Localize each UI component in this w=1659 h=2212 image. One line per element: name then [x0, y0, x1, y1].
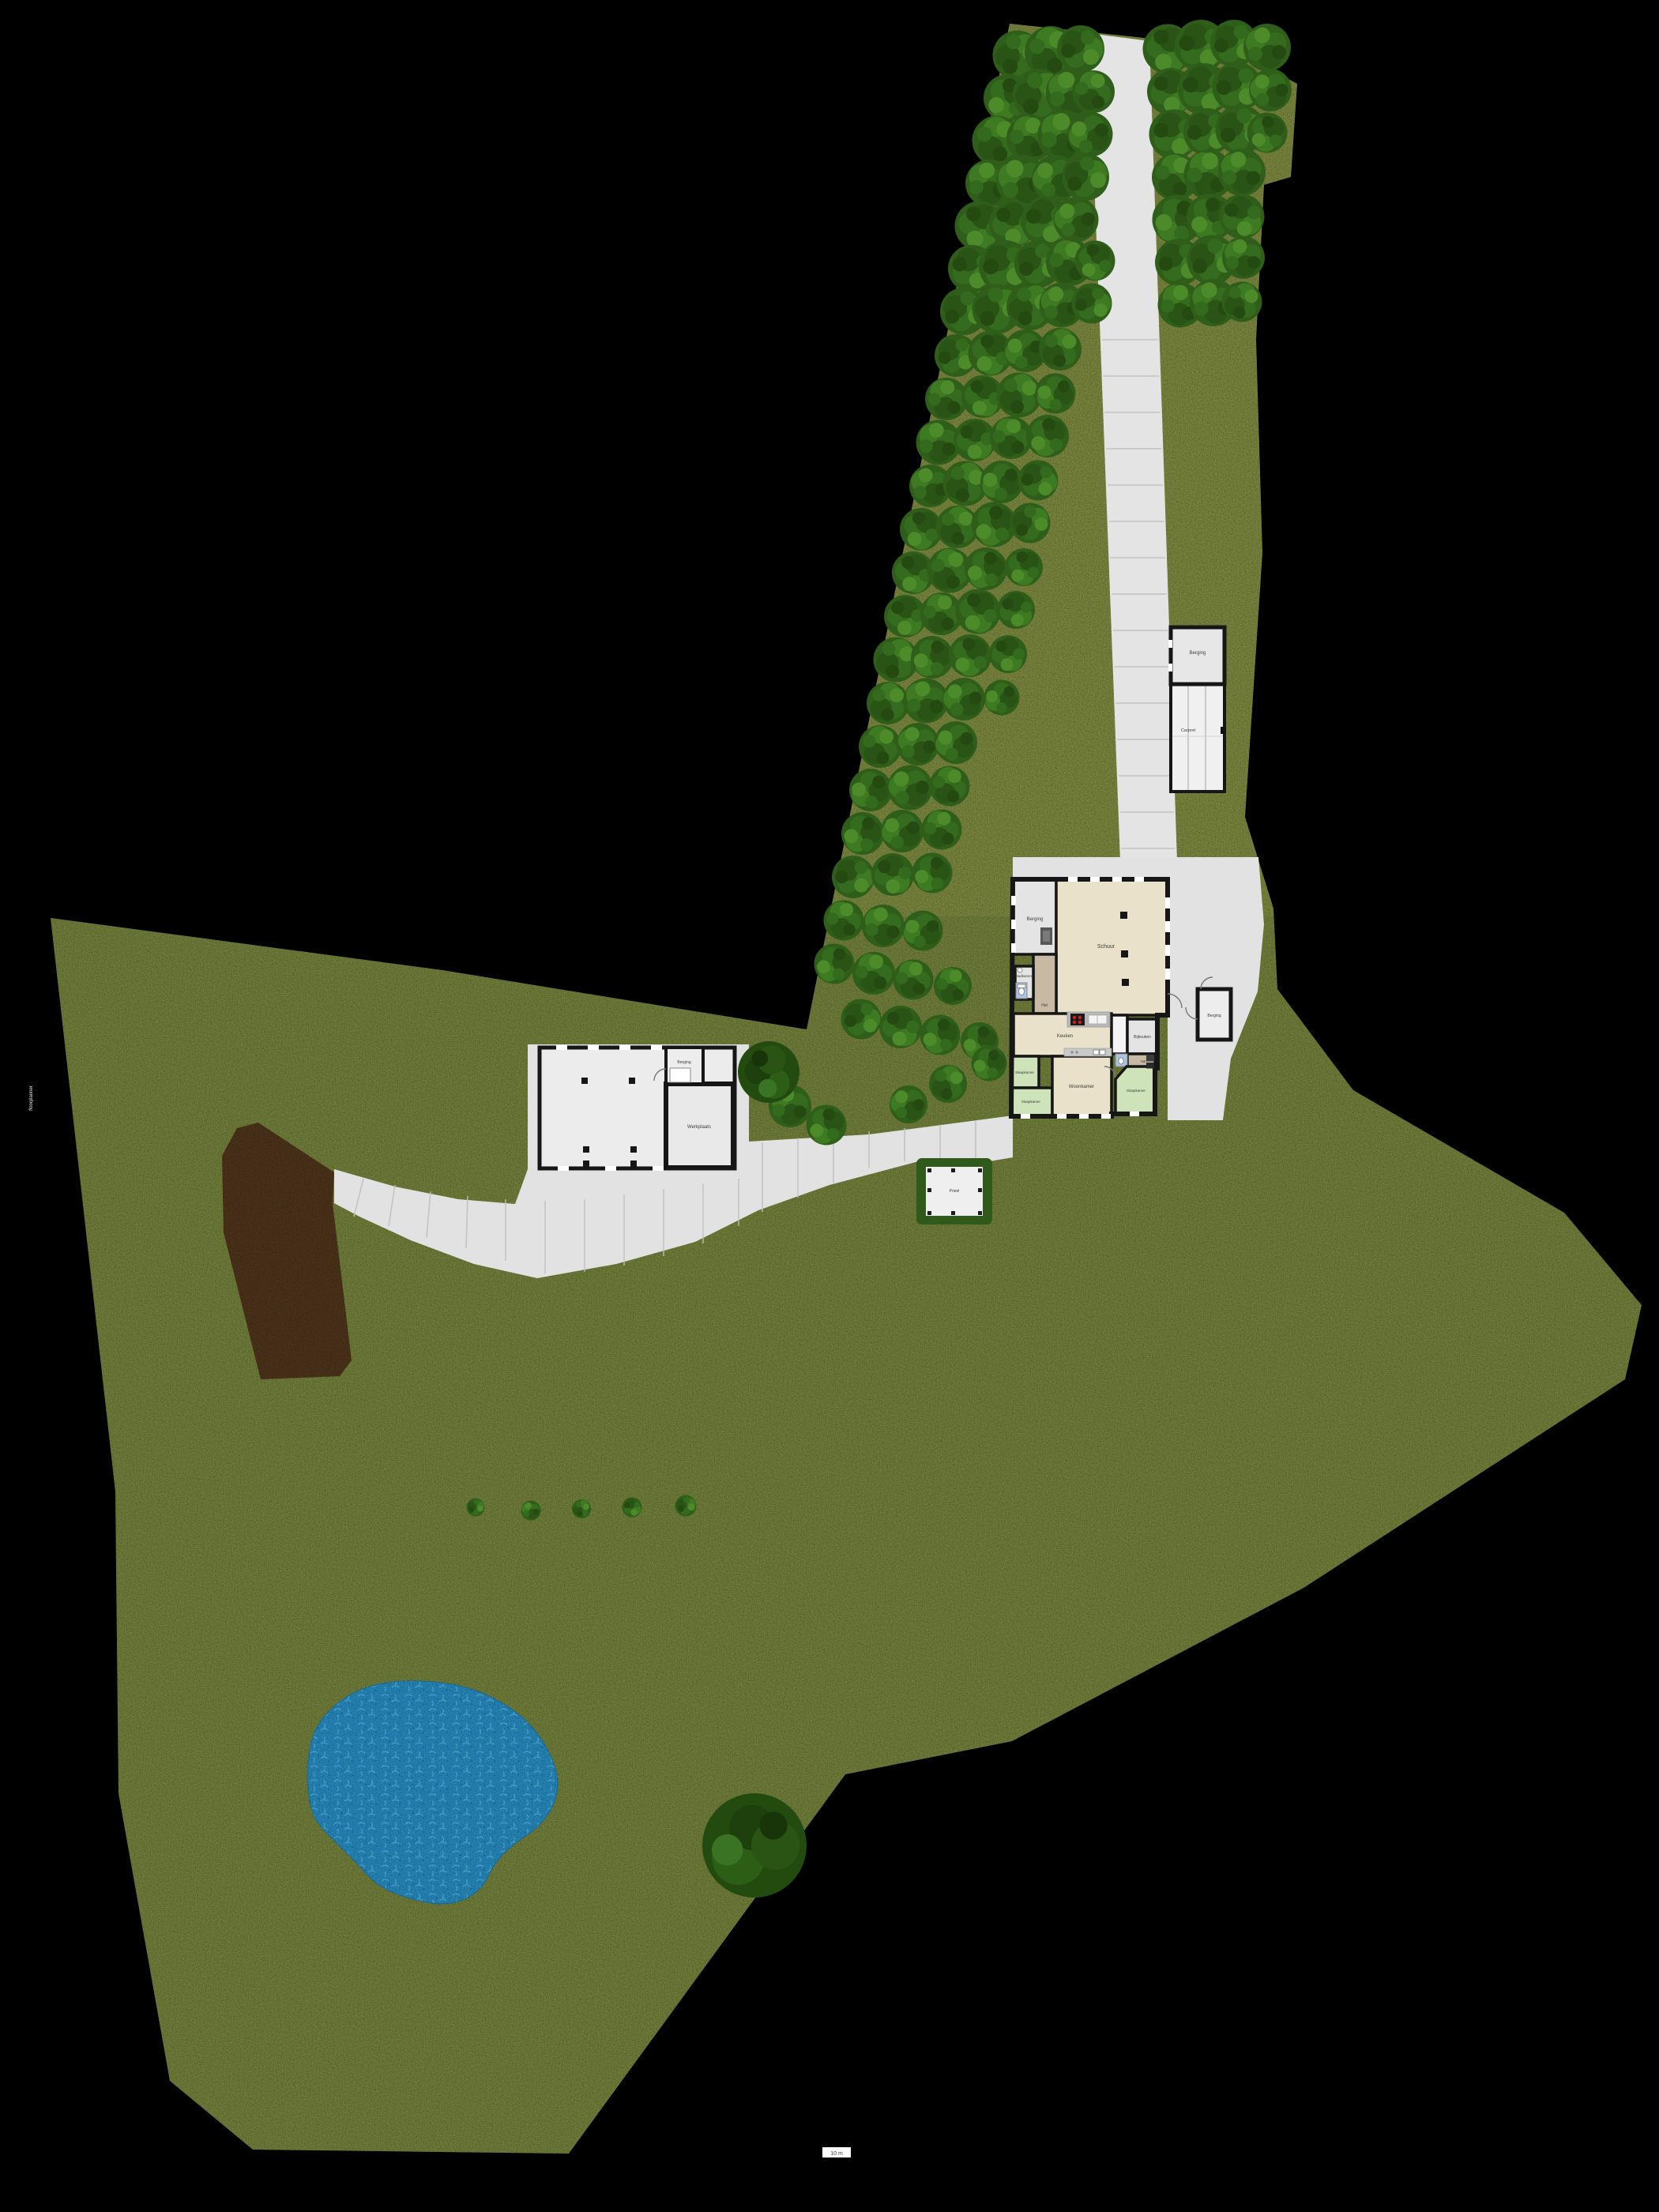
- room-label-slaapkamer-3: Slaapkamer: [1127, 1089, 1146, 1093]
- carport-door: [1221, 727, 1226, 734]
- stove: [1070, 1014, 1085, 1025]
- room-label-hal-1: Hal: [1041, 1003, 1048, 1008]
- carport: [1171, 684, 1224, 792]
- room-label-slaapkamer-1: Slaapkamer: [1015, 1070, 1035, 1074]
- scale-label: 10 m: [830, 2151, 843, 2157]
- room-label-bijkeuken: Bijkeuken: [1134, 1035, 1151, 1040]
- schuur-column: [1121, 950, 1128, 957]
- sink: [1093, 1050, 1099, 1055]
- room-label-berging-detached: Berging: [1207, 1014, 1221, 1018]
- toilet: [1019, 988, 1025, 995]
- room-label-prieel: Prieel: [950, 1189, 960, 1194]
- watermark-text: floorplanner: [29, 1085, 34, 1111]
- kitchen-island: [1067, 1012, 1110, 1027]
- appliance: [1146, 1063, 1154, 1069]
- room-label-carport: Carport: [1181, 728, 1196, 733]
- heater-block-inner: [1043, 931, 1050, 942]
- site-plan-svg: BergingHalBadkamerSchuurKeukenWoonkamerS…: [0, 0, 1659, 2212]
- room-label-werkplaats: Werkplaats: [687, 1125, 711, 1130]
- room-label-keuken: Keuken: [1057, 1034, 1073, 1039]
- room-label-schuur: Schuur: [1097, 944, 1115, 950]
- tree: [972, 1046, 1007, 1082]
- storage-drive: [1171, 627, 1224, 684]
- room-label-berging-nw: Berging: [1027, 917, 1044, 922]
- outbuilding-left: [540, 1045, 735, 1171]
- wc-toilet: [1119, 1058, 1123, 1064]
- room-label-berging-drive: Berging: [1190, 651, 1206, 656]
- room-label-badkamer: Badkamer: [1016, 974, 1033, 978]
- room-label-woonkamer: Woonkamer: [1069, 1085, 1094, 1089]
- schuur-column: [1122, 979, 1129, 986]
- room-label-slaapkamer-2: Slaapkamer: [1021, 1100, 1041, 1104]
- storage-closet: [670, 1068, 690, 1082]
- room-label-berging-left: Berging: [677, 1060, 690, 1065]
- farmhouse: [1011, 877, 1182, 1119]
- room-label-hal-2: Hal: [1141, 1059, 1146, 1063]
- sink: [1100, 1050, 1105, 1055]
- appliance: [1146, 1055, 1154, 1062]
- schuur-column: [1120, 912, 1127, 919]
- site-plan-stage: BergingHalBadkamerSchuurKeukenWoonkamerS…: [0, 0, 1659, 2212]
- room-entree: [1112, 1015, 1127, 1054]
- kitchen-counter: [1064, 1048, 1112, 1056]
- toilet-tank: [1018, 984, 1025, 988]
- washbasin: [1018, 968, 1022, 972]
